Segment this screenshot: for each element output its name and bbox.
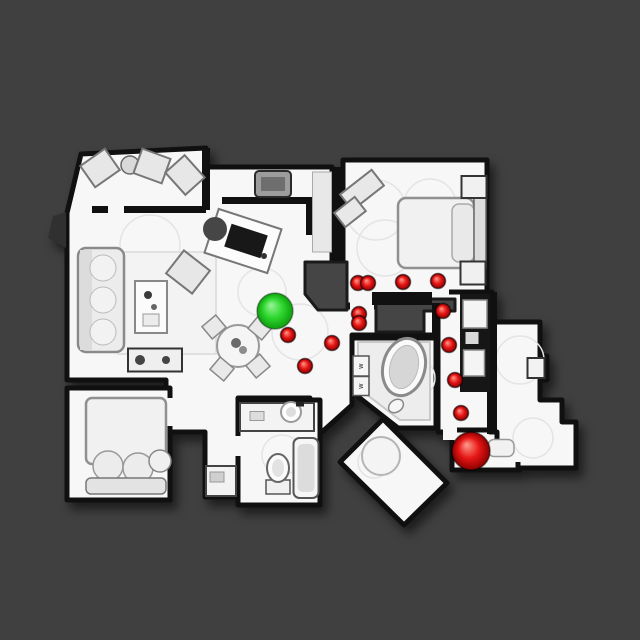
waypoint-marker-9 xyxy=(325,336,340,351)
sofa-cushion-1 xyxy=(90,255,116,281)
entry-bench-top xyxy=(261,177,285,191)
waypoint-marker-10 xyxy=(442,338,457,353)
waypoint-marker-13 xyxy=(454,406,469,421)
doorway-5 xyxy=(443,424,457,440)
closet-shelf-1 xyxy=(463,300,487,328)
sofa-cushion-2 xyxy=(90,287,116,313)
bed-tr-headboard xyxy=(474,198,486,268)
interior-wall-7 xyxy=(372,292,432,305)
bath-counter-item xyxy=(250,412,264,421)
washer-label-1: w xyxy=(357,363,365,369)
console-item-2 xyxy=(162,356,170,364)
interior-wall-2 xyxy=(124,206,206,213)
waypoint-marker-11 xyxy=(298,359,313,374)
nightstand-south xyxy=(461,262,486,285)
waypoint-marker-7 xyxy=(352,316,367,331)
bed-bl-pillow-1 xyxy=(93,451,123,481)
nook-pillow xyxy=(488,440,514,457)
goal-marker xyxy=(452,432,490,470)
desk-item xyxy=(261,253,267,259)
waypoint-marker-12 xyxy=(448,373,463,388)
dining-plant-2 xyxy=(239,346,247,354)
closet-shelf-small xyxy=(466,332,479,344)
closet-shelf-2 xyxy=(464,350,485,376)
coffee-table-tray xyxy=(143,314,159,326)
sink-drain xyxy=(286,407,296,417)
interior-wall-4 xyxy=(222,197,314,204)
coffee-table-decor-2 xyxy=(151,304,157,310)
office-chair xyxy=(203,217,227,241)
diagonal-room-table xyxy=(362,437,400,475)
waypoint-marker-4 xyxy=(431,274,446,289)
scan-viewport: ww xyxy=(0,0,640,640)
bed-tr-pillow xyxy=(452,204,474,262)
sofa-cushion-3 xyxy=(90,319,116,345)
coffee-table-decor-1 xyxy=(144,291,152,299)
washer-label-2: w xyxy=(357,383,365,389)
toilet-bowl-inner xyxy=(272,459,284,477)
alcove-box xyxy=(528,358,545,378)
nightstand-north xyxy=(462,176,487,198)
start-marker xyxy=(257,293,293,329)
waypoint-marker-2 xyxy=(361,276,376,291)
dining-plant-1 xyxy=(231,338,241,348)
interior-wall-1 xyxy=(92,206,108,213)
bed-bl-headboard xyxy=(86,478,166,494)
doorway-4 xyxy=(234,436,244,456)
hall-cabinet-item xyxy=(210,472,224,482)
tub-bottom-inner xyxy=(298,444,315,492)
faucet xyxy=(296,402,304,407)
floor-plan-scan: ww xyxy=(0,0,640,640)
scan-hole-center-left xyxy=(305,262,347,310)
waypoint-marker-3 xyxy=(396,275,411,290)
entry-closet xyxy=(313,172,332,252)
waypoint-marker-5 xyxy=(436,304,451,319)
console-item-1 xyxy=(135,355,145,365)
waypoint-marker-8 xyxy=(281,328,296,343)
ottoman xyxy=(149,450,171,472)
